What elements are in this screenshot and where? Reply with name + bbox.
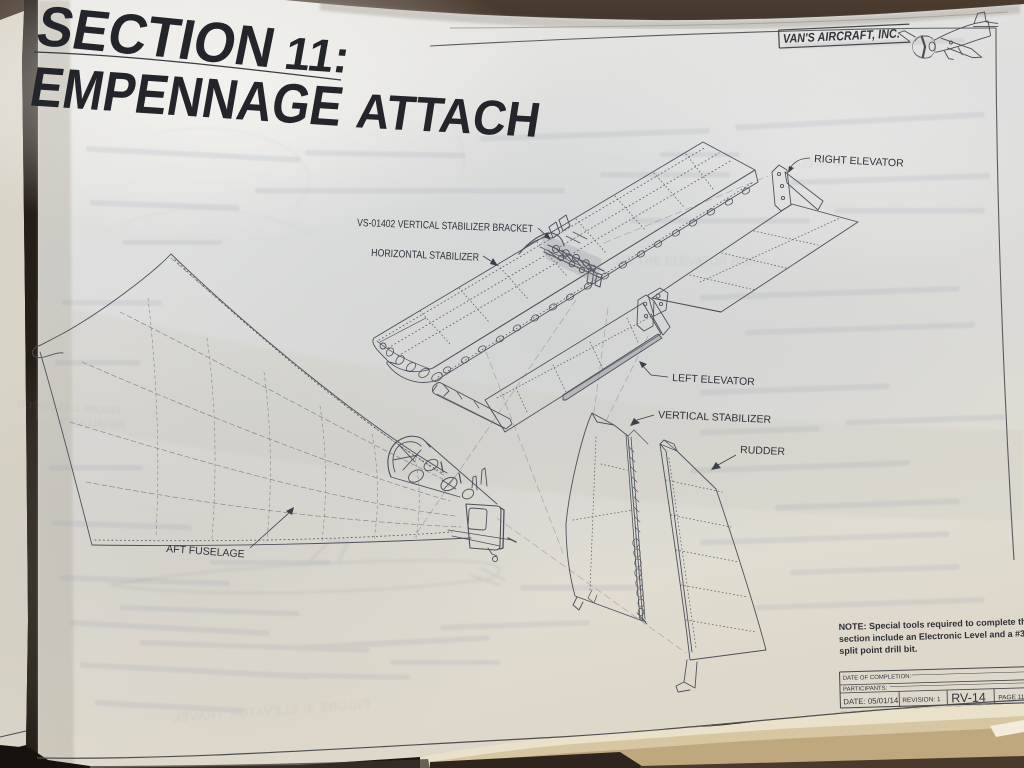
svg-text:RV-14: RV-14	[951, 690, 986, 705]
svg-text:PAGE 11-01: PAGE 11-01	[998, 694, 1024, 702]
svg-text:RUDDER: RUDDER	[740, 444, 786, 458]
svg-text:DATE: 05/01/14: DATE: 05/01/14	[843, 696, 899, 707]
svg-text:NG THE ELEVATOR HOR: NG THE ELEVATOR HOR	[616, 256, 758, 268]
svg-text:PARTICIPANTS:: PARTICIPANTS:	[843, 686, 888, 693]
svg-text:ATTACH: ATTACH	[353, 85, 544, 148]
svg-text:REVISION: 1: REVISION: 1	[902, 696, 941, 704]
